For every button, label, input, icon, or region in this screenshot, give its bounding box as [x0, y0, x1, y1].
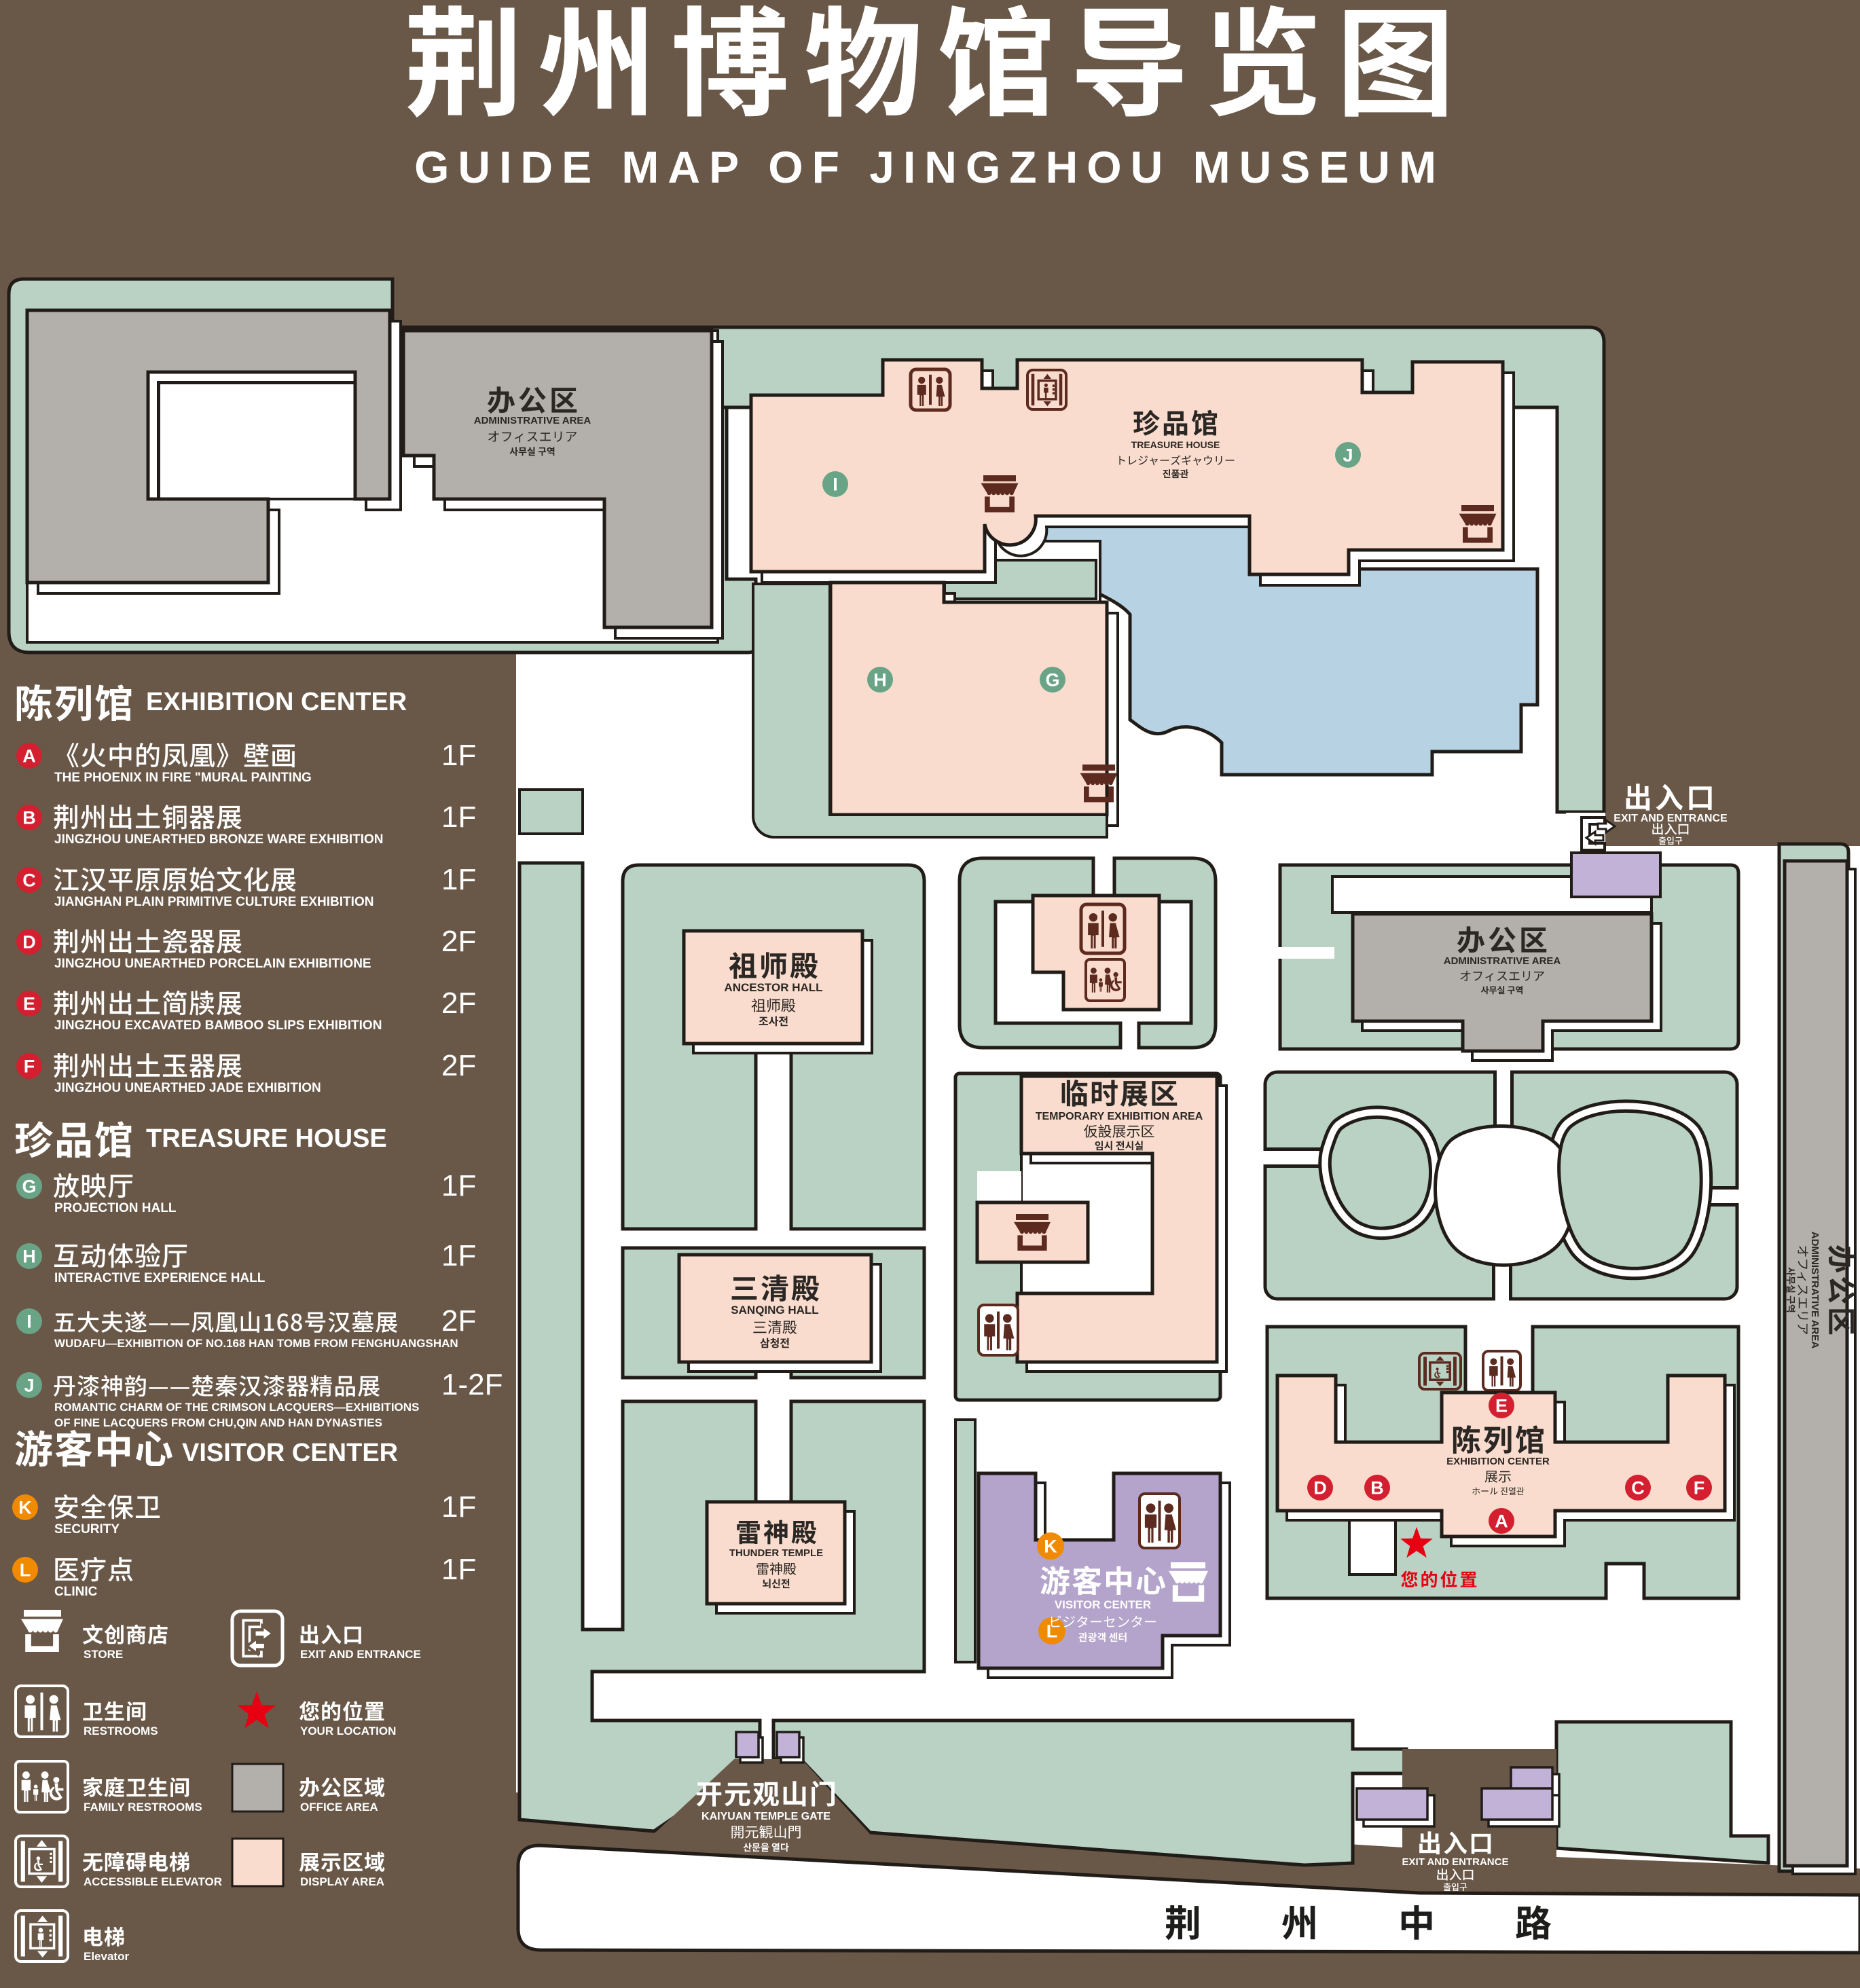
- svg-text:2F: 2F: [441, 1049, 476, 1082]
- svg-text:JIANGHAN PLAIN PRIMITIVE CULTU: JIANGHAN PLAIN PRIMITIVE CULTURE EXHIBIT…: [54, 895, 373, 909]
- svg-text:1F: 1F: [441, 1553, 476, 1586]
- svg-text:VISITOR CENTER: VISITOR CENTER: [182, 1439, 398, 1467]
- svg-text:G: G: [22, 1177, 36, 1197]
- svg-text:THUNDER TEMPLE: THUNDER TEMPLE: [729, 1547, 823, 1559]
- svg-text:H: H: [873, 670, 887, 691]
- svg-text:L: L: [20, 1560, 31, 1581]
- svg-text:J: J: [24, 1376, 34, 1396]
- svg-text:STORE: STORE: [84, 1648, 123, 1661]
- svg-text:YOUR LOCATION: YOUR LOCATION: [300, 1725, 396, 1737]
- svg-text:1-2F: 1-2F: [441, 1368, 503, 1401]
- svg-text:B: B: [1370, 1478, 1384, 1498]
- svg-text:1F: 1F: [441, 739, 476, 772]
- svg-text:Elevator: Elevator: [84, 1950, 129, 1963]
- svg-text:ACCESSIBLE ELEVATOR: ACCESSIBLE ELEVATOR: [84, 1875, 222, 1888]
- svg-text:EXIT AND ENTRANCE: EXIT AND ENTRANCE: [1613, 813, 1728, 824]
- svg-text:ADMINISTRATIVE AREA: ADMINISTRATIVE AREA: [1444, 955, 1561, 967]
- svg-text:ROMANTIC CHARM OF THE CRIMSON: ROMANTIC CHARM OF THE CRIMSON LACQUERS—E…: [54, 1401, 419, 1414]
- svg-text:I: I: [26, 1312, 32, 1332]
- svg-text:F: F: [24, 1056, 35, 1077]
- svg-text:THE PHOENIX IN FIRE "MURAL PAI: THE PHOENIX IN FIRE "MURAL PAINTING: [54, 771, 312, 785]
- svg-text:2F: 2F: [441, 925, 476, 958]
- svg-text:F: F: [1694, 1478, 1705, 1498]
- svg-text:ADMINISTRATIVE AREA: ADMINISTRATIVE AREA: [474, 415, 591, 426]
- svg-text:C: C: [22, 870, 36, 891]
- svg-text:KAIYUAN TEMPLE GATE: KAIYUAN TEMPLE GATE: [701, 1811, 831, 1822]
- svg-text:OFFICE AREA: OFFICE AREA: [300, 1801, 378, 1814]
- svg-text:EXHIBITION CENTER: EXHIBITION CENTER: [146, 688, 407, 716]
- svg-text:1F: 1F: [441, 1239, 476, 1272]
- svg-text:I: I: [833, 475, 838, 495]
- svg-text:JINGZHOU UNEARTHED PORCELAIN E: JINGZHOU UNEARTHED PORCELAIN EXHIBITIONE: [54, 957, 371, 971]
- svg-text:FAMILY RESTROOMS: FAMILY RESTROOMS: [84, 1801, 202, 1814]
- svg-text:D: D: [22, 932, 36, 953]
- svg-text:A: A: [22, 746, 36, 767]
- svg-text:B: B: [22, 808, 36, 828]
- svg-text:1F: 1F: [441, 800, 476, 834]
- svg-text:INTERACTIVE EXPERIENCE HALL: INTERACTIVE EXPERIENCE HALL: [54, 1271, 266, 1285]
- svg-text:CLINIC: CLINIC: [54, 1585, 98, 1599]
- svg-text:2F: 2F: [441, 1304, 476, 1338]
- svg-text:DISPLAY AREA: DISPLAY AREA: [300, 1875, 384, 1888]
- svg-text:SANQING HALL: SANQING HALL: [731, 1304, 818, 1317]
- svg-text:WUDAFU—EXHIBITION OF NO.168 HA: WUDAFU—EXHIBITION OF NO.168 HAN TOMB FRO…: [54, 1337, 458, 1350]
- svg-text:C: C: [1631, 1478, 1645, 1498]
- svg-text:GUIDE MAP OF JINGZHOU MUSEUM: GUIDE MAP OF JINGZHOU MUSEUM: [414, 142, 1445, 192]
- svg-text:SECURITY: SECURITY: [54, 1522, 120, 1536]
- svg-text:JINGZHOU EXCAVATED BAMBOO SLIP: JINGZHOU EXCAVATED BAMBOO SLIPS EXHIBITI…: [54, 1018, 382, 1033]
- svg-text:K: K: [18, 1498, 32, 1518]
- svg-text:1F: 1F: [441, 863, 476, 896]
- svg-text:E: E: [23, 994, 35, 1014]
- svg-text:2F: 2F: [441, 987, 476, 1020]
- svg-text:A: A: [1495, 1511, 1508, 1532]
- svg-text:E: E: [1495, 1396, 1508, 1416]
- svg-text:1F: 1F: [441, 1490, 476, 1524]
- svg-text:JINGZHOU UNEARTHED JADE EXHIBI: JINGZHOU UNEARTHED JADE EXHIBITION: [54, 1081, 321, 1095]
- svg-text:OF FINE LACQUERS FROM CHU,QIN: OF FINE LACQUERS FROM CHU,QIN AND HAN DY…: [54, 1416, 382, 1429]
- svg-text:1F: 1F: [441, 1169, 476, 1202]
- svg-text:EXHIBITION CENTER: EXHIBITION CENTER: [1446, 1456, 1550, 1467]
- svg-text:D: D: [1313, 1478, 1327, 1498]
- svg-text:EXIT AND ENTRANCE: EXIT AND ENTRANCE: [1402, 1856, 1509, 1868]
- svg-text:RESTROOMS: RESTROOMS: [84, 1725, 158, 1737]
- svg-text:K: K: [1044, 1536, 1057, 1557]
- svg-text:TREASURE HOUSE: TREASURE HOUSE: [146, 1124, 387, 1153]
- svg-text:G: G: [1045, 670, 1059, 691]
- svg-text:TREASURE HOUSE: TREASURE HOUSE: [1131, 439, 1220, 450]
- svg-text:TEMPORARY EXHIBITION AREA: TEMPORARY EXHIBITION AREA: [1036, 1111, 1203, 1122]
- svg-text:VISITOR CENTER: VISITOR CENTER: [1055, 1598, 1151, 1611]
- svg-text:J: J: [1343, 445, 1353, 466]
- svg-text:PROJECTION HALL: PROJECTION HALL: [54, 1201, 177, 1215]
- svg-text:JINGZHOU UNEARTHED BRONZE WARE: JINGZHOU UNEARTHED BRONZE WARE EXHIBITIO…: [54, 832, 384, 847]
- svg-text:ANCESTOR HALL: ANCESTOR HALL: [724, 981, 822, 994]
- svg-text:H: H: [22, 1247, 36, 1267]
- svg-text:ADMINISTRATIVE AREA: ADMINISTRATIVE AREA: [1809, 1232, 1821, 1349]
- svg-text:EXIT AND ENTRANCE: EXIT AND ENTRANCE: [300, 1648, 421, 1661]
